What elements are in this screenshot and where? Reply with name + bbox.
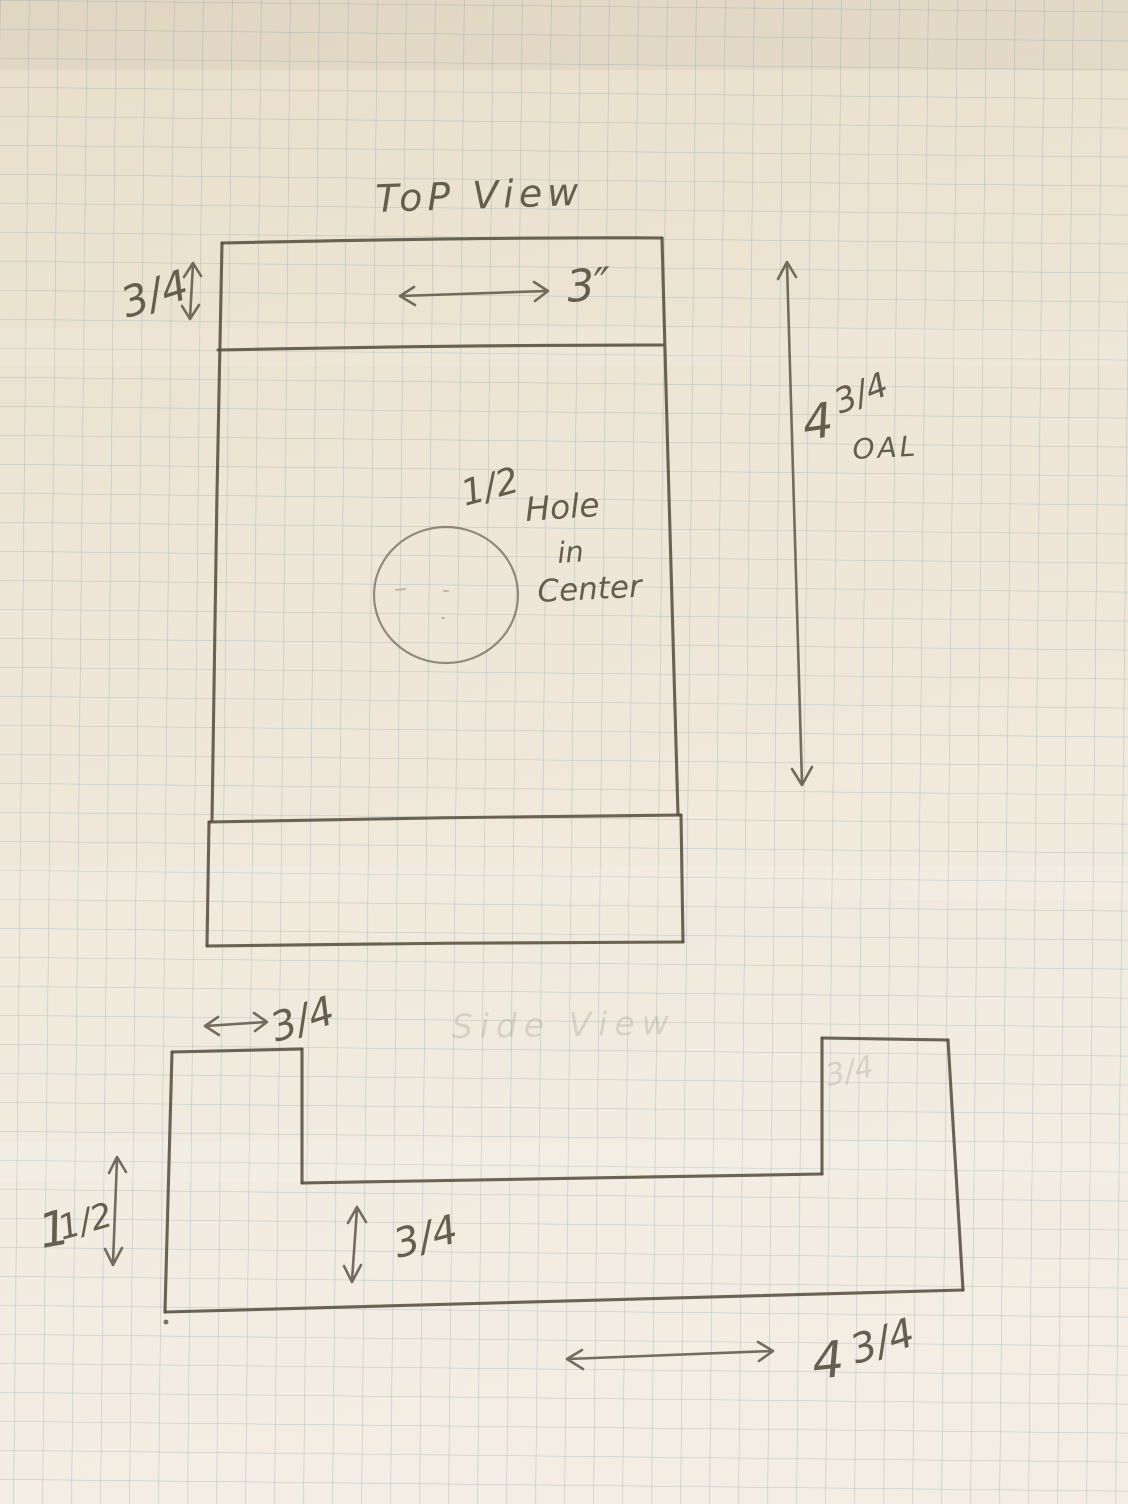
- hole-note-word-1: Hole: [524, 485, 601, 529]
- side-view-right-tab-top: [822, 1038, 948, 1040]
- oal-dimension-suffix: OAL: [852, 430, 919, 466]
- sketch-svg: ToP View 3/4 3″ 4 3/4 OAL 1/2 Hole in Ce…: [0, 0, 1128, 1504]
- light-streak: [0, 328, 1128, 366]
- stray-pencil-dot: [164, 1320, 169, 1325]
- length-dimension-whole: 4: [809, 1330, 847, 1391]
- side-view-erased-title: Side View: [451, 1003, 676, 1046]
- hole-note-word-2: in: [556, 534, 585, 570]
- graph-paper-sketch-photo: ToP View 3/4 3″ 4 3/4 OAL 1/2 Hole in Ce…: [0, 0, 1128, 1504]
- top-view-title: ToP View: [375, 170, 584, 221]
- top-view-band-right: [681, 815, 683, 942]
- width-dimension-label: 3″: [565, 258, 614, 313]
- hole-note-word-3: Center: [537, 568, 645, 610]
- grid-lines: [0, 0, 1128, 1504]
- top-view-band-left: [207, 822, 209, 946]
- light-streak: [0, 866, 1128, 900]
- photo-shade-top: [0, 0, 1128, 70]
